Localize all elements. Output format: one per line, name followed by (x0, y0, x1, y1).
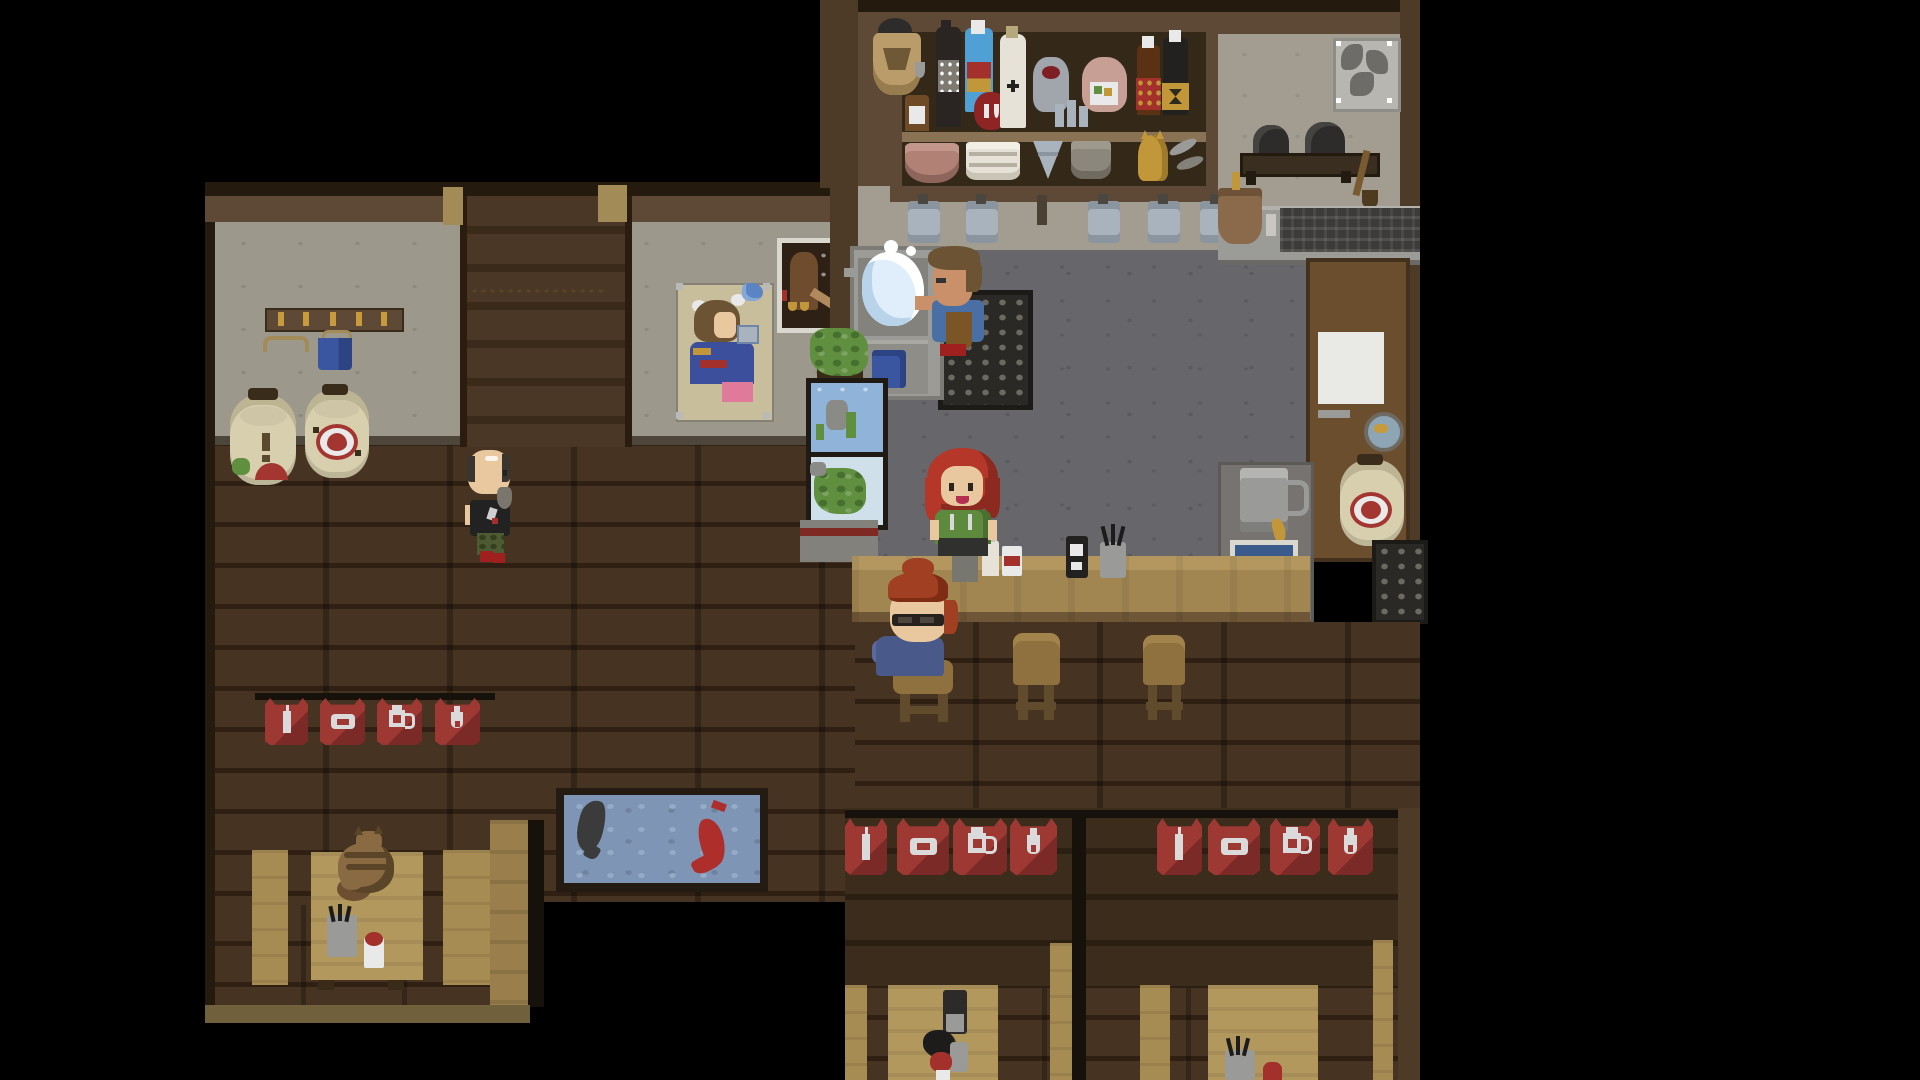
bottle-icon (1178, 827, 1181, 836)
right-wall (1398, 808, 1420, 1080)
bottle-icon (1175, 834, 1183, 860)
mug-icon (1288, 839, 1297, 848)
mug-handle-icon (1301, 836, 1312, 854)
food-bowl (1263, 1062, 1282, 1080)
flask-icon (1347, 828, 1354, 835)
mug-lid-icon (1286, 827, 1298, 833)
bench[interactable] (1373, 940, 1393, 1080)
booth-right (0, 0, 1920, 1080)
banner-rail (1090, 810, 1398, 818)
chopsticks-icon (1236, 1036, 1240, 1055)
bench[interactable] (1140, 985, 1170, 1080)
flask-icon (1348, 845, 1353, 852)
bowl-icon (1228, 843, 1241, 850)
booth-divider (1072, 812, 1086, 1080)
game-viewport (0, 0, 1920, 1080)
